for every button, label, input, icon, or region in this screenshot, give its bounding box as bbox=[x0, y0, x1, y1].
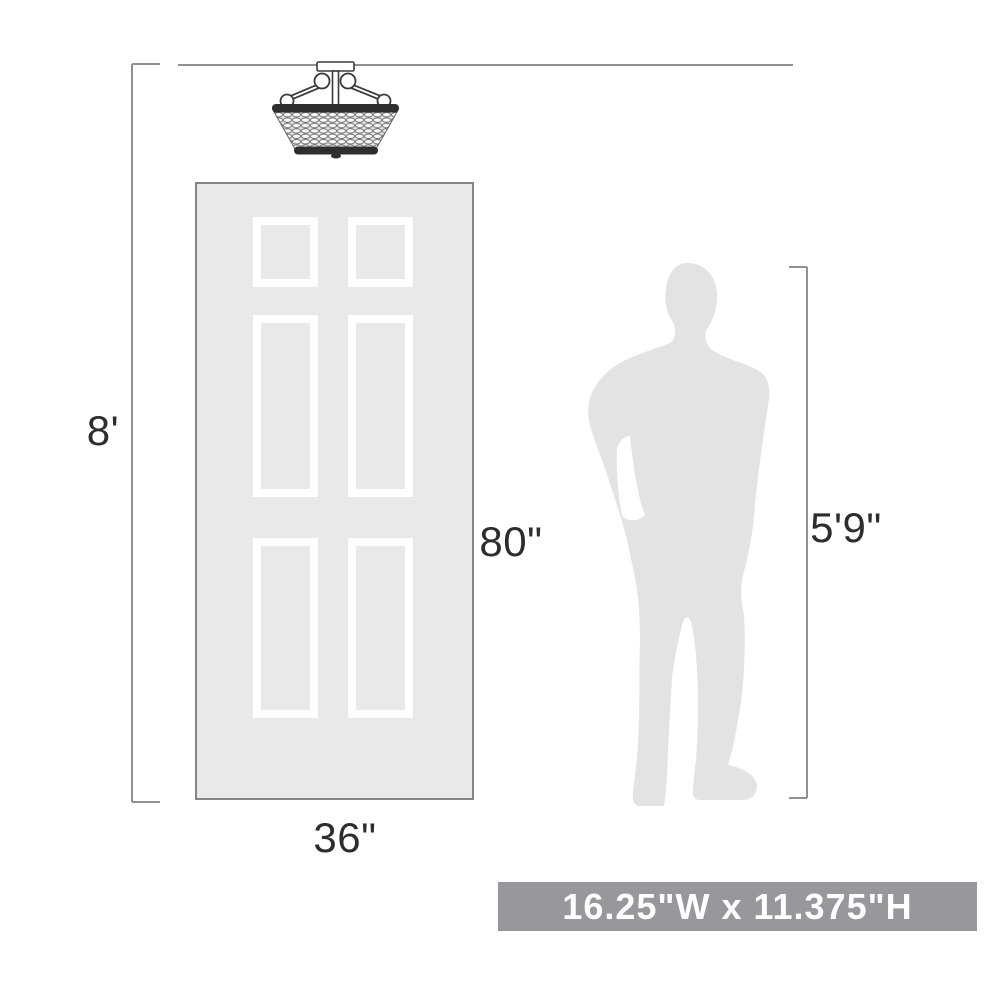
man-silhouette bbox=[588, 263, 769, 806]
ceiling-height-label: 8' bbox=[87, 407, 119, 455]
light-fixture bbox=[272, 62, 399, 159]
fixture-bead-basket bbox=[274, 112, 397, 149]
man-ear-notch bbox=[656, 297, 664, 319]
door-slab bbox=[196, 183, 473, 799]
fixture-stem bbox=[333, 71, 339, 105]
fixture-canopy-ring-right bbox=[341, 74, 356, 89]
door-width-label: 36" bbox=[313, 814, 376, 862]
product-size-text: 16.25"W x 11.375"H bbox=[562, 886, 912, 928]
fixture-canopy-ring-left bbox=[315, 74, 330, 89]
diagram-graphics bbox=[0, 0, 1000, 1000]
man-silhouette-shape bbox=[588, 263, 769, 806]
product-size-banner: 16.25"W x 11.375"H bbox=[498, 882, 977, 931]
door-height-label: 80" bbox=[479, 518, 542, 566]
fixture-top-band bbox=[272, 104, 399, 113]
person-height-dimension-line bbox=[789, 267, 807, 798]
fixture-finial bbox=[331, 154, 341, 159]
scale-diagram: 8' 80" 36" 5'9" 16.25"W x 11.375"H bbox=[0, 0, 1000, 1000]
person-height-label: 5'9" bbox=[810, 504, 882, 552]
door bbox=[196, 183, 473, 799]
ceiling-height-dimension-line bbox=[132, 64, 160, 802]
fixture-ceiling-plate bbox=[317, 62, 354, 71]
fixture-bottom-band bbox=[294, 147, 378, 155]
